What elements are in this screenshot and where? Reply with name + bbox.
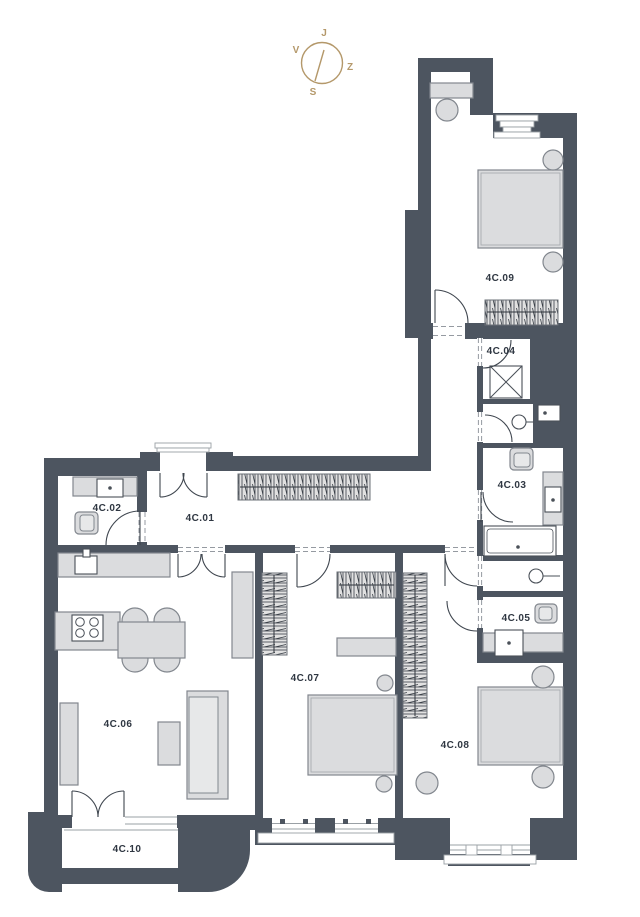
compass-circle bbox=[302, 43, 343, 84]
shaft-symbol-4c04 bbox=[490, 366, 522, 398]
room-label-4c04: 4C.04 bbox=[487, 346, 516, 357]
window-4c06 bbox=[125, 812, 177, 830]
room-floor-bay bbox=[450, 818, 530, 840]
entrance-step bbox=[155, 443, 211, 448]
floor-plan-page: 4C.01 4C.02 4C.03 4C.04 4C.05 4C.06 4C.0… bbox=[0, 0, 640, 917]
bed-4c07 bbox=[308, 695, 397, 775]
nightstand-4c07 bbox=[376, 776, 392, 792]
dining-table bbox=[118, 622, 185, 658]
nightstand-4c09 bbox=[543, 150, 563, 170]
room-floor-corridor-vertical bbox=[431, 339, 477, 471]
compass-label-top: J bbox=[321, 28, 327, 39]
wardrobe-4c07-left bbox=[262, 573, 287, 655]
shelf-4c09 bbox=[430, 83, 473, 98]
shelf-4c07 bbox=[337, 638, 396, 656]
room-label-4c03: 4C.03 bbox=[498, 480, 527, 491]
sink-4c05 bbox=[495, 630, 523, 656]
nightstand-4c08 bbox=[532, 766, 554, 788]
compass-rose: J Z S V bbox=[293, 28, 353, 98]
side-table-4c09 bbox=[436, 99, 458, 121]
room-floor-hallway bbox=[427, 553, 477, 663]
room-label-4c06: 4C.06 bbox=[104, 719, 133, 730]
window-4c07-left bbox=[272, 818, 315, 833]
compass-label-bottom: S bbox=[310, 87, 317, 98]
coffee-table bbox=[158, 722, 180, 765]
wardrobe-4c07-right bbox=[403, 573, 427, 718]
entrance-opening bbox=[160, 452, 206, 473]
wardrobe-4c07-top bbox=[337, 572, 396, 598]
toilet-4c02 bbox=[75, 512, 98, 534]
window-4c09 bbox=[494, 115, 540, 138]
compass-label-right: Z bbox=[347, 62, 353, 73]
room-label-4c10: 4C.10 bbox=[113, 844, 142, 855]
room-label-4c08: 4C.08 bbox=[441, 740, 470, 751]
sink-4c02 bbox=[97, 479, 123, 497]
floor-plan: 4C.01 4C.02 4C.03 4C.04 4C.05 4C.06 4C.0… bbox=[0, 0, 640, 917]
wardrobe-4c01 bbox=[238, 474, 370, 500]
room-label-4c09: 4C.09 bbox=[486, 273, 515, 284]
bathtub-4c03 bbox=[484, 526, 556, 556]
window-4c08-bay bbox=[444, 840, 536, 864]
wardrobe-4c06 bbox=[232, 572, 253, 658]
room-label-4c01: 4C.01 bbox=[186, 513, 215, 524]
side-table-4c08 bbox=[416, 772, 438, 794]
toilet-4c05 bbox=[535, 604, 557, 623]
window-sill-4c07 bbox=[258, 833, 394, 843]
nightstand-4c09 bbox=[543, 252, 563, 272]
bed-4c08 bbox=[478, 687, 563, 765]
toilet-4c03 bbox=[510, 448, 533, 470]
bed-4c09 bbox=[478, 170, 563, 248]
room-label-4c02: 4C.02 bbox=[93, 503, 122, 514]
sink-cabinet-4c03 bbox=[543, 472, 563, 525]
room-label-4c07: 4C.07 bbox=[291, 673, 320, 684]
wardrobe-4c09 bbox=[485, 300, 558, 325]
nightstand-4c07 bbox=[377, 675, 393, 691]
nightstand-4c08 bbox=[532, 666, 554, 688]
room-label-4c05: 4C.05 bbox=[502, 613, 531, 624]
sofa bbox=[187, 691, 228, 799]
shelf-4c06 bbox=[60, 703, 78, 785]
compass-label-left: V bbox=[293, 45, 300, 56]
compass-needle bbox=[315, 50, 324, 81]
cooktop bbox=[72, 615, 103, 641]
entrance-step bbox=[157, 448, 209, 452]
window-4c07-right bbox=[335, 818, 378, 833]
niche-wc bbox=[538, 405, 560, 421]
